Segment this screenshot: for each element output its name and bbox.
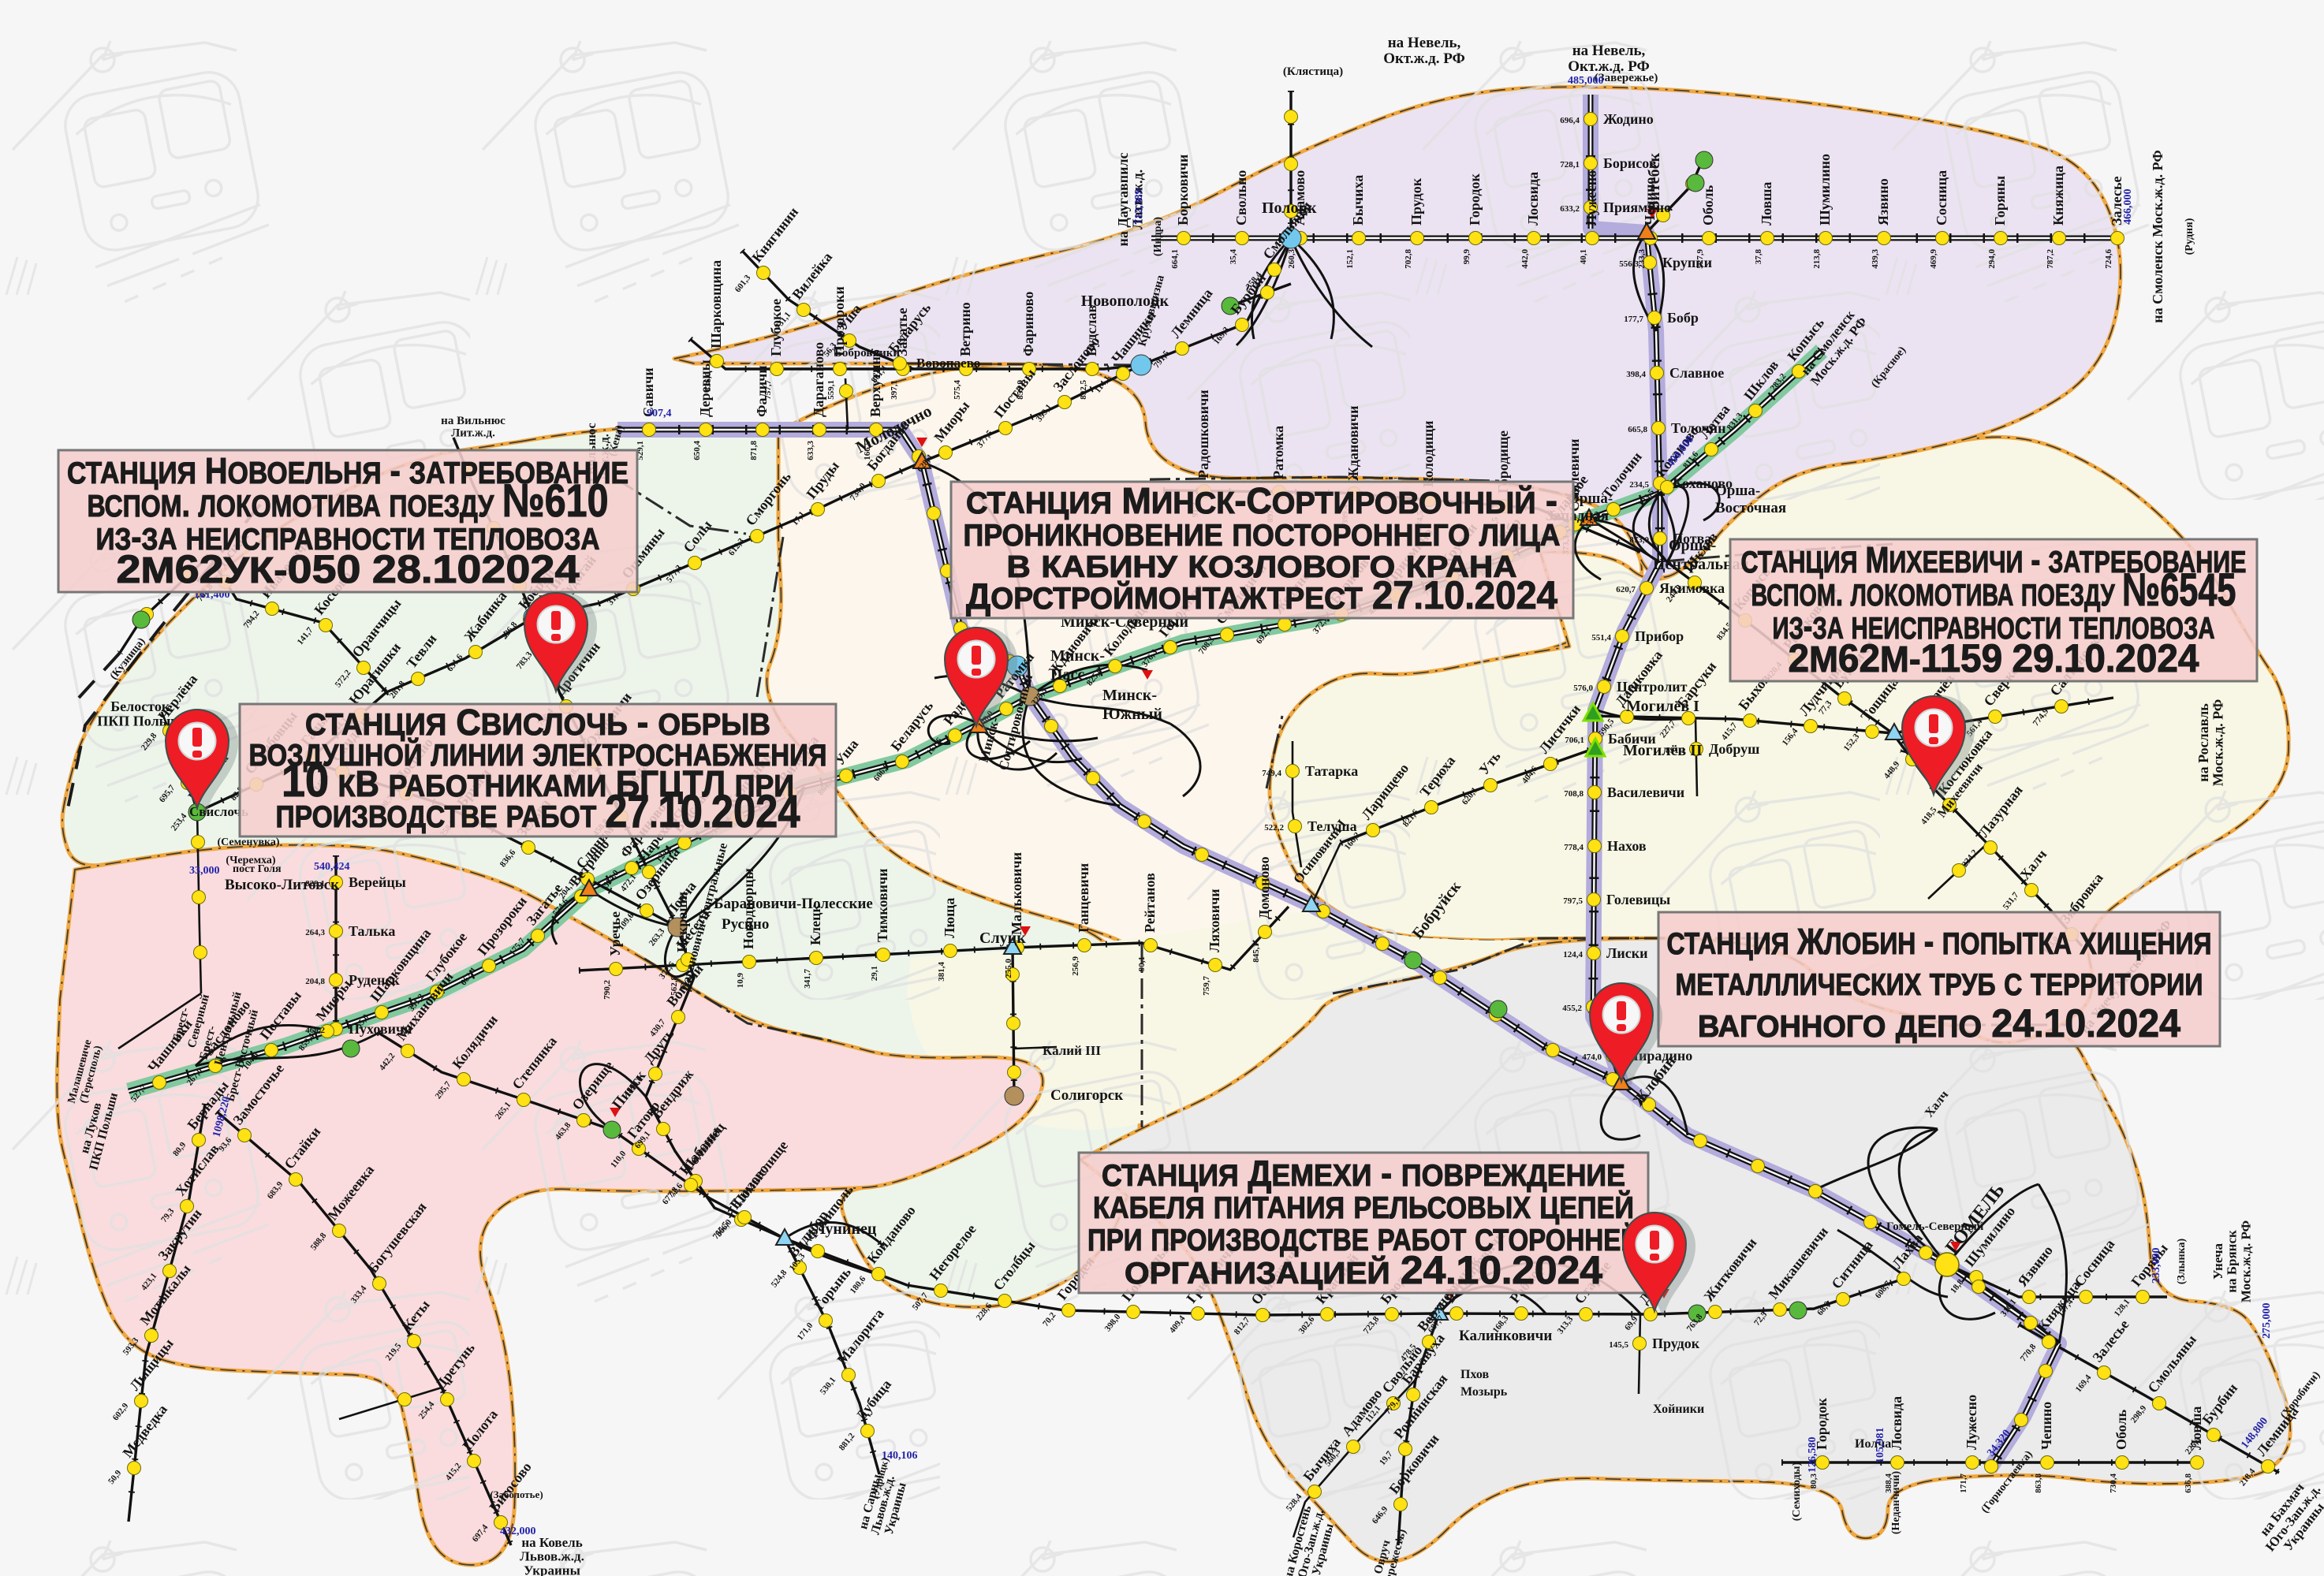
svg-text:Фаличи: Фаличи xyxy=(754,365,770,417)
svg-text:Свольно: Свольно xyxy=(1233,170,1249,225)
svg-text:892,5: 892,5 xyxy=(1079,380,1088,400)
svg-text:(Рудня): (Рудня) xyxy=(2184,218,2195,255)
svg-text:Калий III: Калий III xyxy=(1043,1043,1101,1058)
svg-text:Бобр: Бобр xyxy=(1667,310,1699,326)
svg-text:на КовельЛьвов.ж.д.Украины: на КовельЛьвов.ж.д.Украины xyxy=(520,1535,584,1576)
svg-text:Лосвида: Лосвида xyxy=(1525,172,1541,225)
svg-text:33,000: 33,000 xyxy=(189,865,220,877)
svg-text:233,000: 233,000 xyxy=(2151,1248,2162,1284)
svg-text:Радошковичи: Радошковичи xyxy=(1196,389,1211,479)
svg-text:Городок: Городок xyxy=(1467,173,1483,225)
svg-text:Мозырь: Мозырь xyxy=(1460,1385,1508,1399)
svg-text:439,3: 439,3 xyxy=(1871,249,1880,269)
svg-text:442,0: 442,0 xyxy=(1520,249,1530,269)
svg-text:СТАНЦИЯ ДЕМЕХИ - ПОВРЕЖДЕНИЕ: СТАНЦИЯ ДЕМЕХИ - ПОВРЕЖДЕНИЕ xyxy=(1102,1153,1625,1194)
svg-text:466,000: 466,000 xyxy=(2122,189,2134,225)
svg-text:Минск-: Минск- xyxy=(1102,687,1157,704)
svg-text:Домоново: Домоново xyxy=(1256,856,1272,919)
svg-text:397,1: 397,1 xyxy=(890,380,899,400)
svg-text:Лужесно: Лужесно xyxy=(1584,170,1599,225)
svg-text:636,8: 636,8 xyxy=(2184,1474,2193,1493)
svg-text:Солигорск: Солигорск xyxy=(1050,1087,1123,1104)
svg-text:398,4: 398,4 xyxy=(1626,370,1646,379)
svg-text:Язвино: Язвино xyxy=(1875,178,1891,225)
svg-text:Гомель-Северный: Гомель-Северный xyxy=(1886,1220,1984,1233)
svg-text:Ганцевичи: Ганцевичи xyxy=(1076,863,1091,933)
svg-text:Горяны: Горяны xyxy=(1992,176,2008,225)
svg-text:171,7: 171,7 xyxy=(1959,1474,1968,1493)
svg-text:633,2: 633,2 xyxy=(1560,204,1580,214)
svg-text:90,1: 90,1 xyxy=(1137,956,1147,971)
svg-text:Лужесно: Лужесно xyxy=(1964,1395,1979,1450)
svg-text:Ляховичи: Ляховичи xyxy=(1207,889,1222,952)
svg-text:Пхов: Пхов xyxy=(1460,1368,1489,1381)
svg-text:Уречье: Уречье xyxy=(607,911,623,956)
svg-text:Пасс.: Пасс. xyxy=(1050,666,1088,684)
svg-text:Центролит: Центролит xyxy=(1617,679,1688,695)
svg-text:40,1: 40,1 xyxy=(1579,249,1588,264)
svg-text:778,4: 778,4 xyxy=(1564,843,1584,852)
svg-text:702,8: 702,8 xyxy=(1404,249,1413,269)
svg-text:Шумилино: Шумилино xyxy=(1817,154,1833,225)
svg-text:КАБЕЛЯ ПИТАНИЯ РЕЛЬСОВЫХ ЦЕПЕЙ: КАБЕЛЯ ПИТАНИЯ РЕЛЬСОВЫХ ЦЕПЕЙ xyxy=(1093,1185,1634,1226)
svg-text:ПРОНИКНОВЕНИЕ ПОСТОРОННЕГО ЛИЦ: ПРОНИКНОВЕНИЕ ПОСТОРОННЕГО ЛИЦА xyxy=(964,512,1561,553)
svg-text:455,2: 455,2 xyxy=(1562,1004,1582,1013)
svg-text:260,3: 260,3 xyxy=(1287,249,1296,269)
svg-text:(Завережье): (Завережье) xyxy=(1595,72,1658,84)
svg-text:МЕТАЛЛЛИЧЕСКИХ ТРУБ С ТЕРРИТОР: МЕТАЛЛЛИЧЕСКИХ ТРУБ С ТЕРРИТОРИИ xyxy=(1676,962,2203,1003)
svg-text:Голевицы: Голевицы xyxy=(1606,892,1670,907)
svg-text:Рейтанов: Рейтанов xyxy=(1142,873,1158,933)
svg-text:80,3: 80,3 xyxy=(1809,1474,1819,1489)
svg-text:Оболь: Оболь xyxy=(1700,184,1716,225)
svg-text:871,8: 871,8 xyxy=(749,441,759,460)
svg-text:35,4: 35,4 xyxy=(1229,249,1238,265)
svg-text:Будслав: Будслав xyxy=(1084,304,1099,356)
svg-text:Орша-: Орша- xyxy=(1669,537,1716,554)
svg-text:105,981: 105,981 xyxy=(1874,1428,1886,1464)
svg-text:Люща: Люща xyxy=(942,898,957,938)
svg-text:708,8: 708,8 xyxy=(1564,789,1584,799)
svg-text:Калинковичи: Калинковичи xyxy=(1459,1328,1552,1344)
svg-text:2М62М-1159 29.10.2024: 2М62М-1159 29.10.2024 xyxy=(1789,636,2199,680)
svg-text:145,5: 145,5 xyxy=(1609,1340,1628,1350)
svg-text:650,4: 650,4 xyxy=(692,441,702,460)
svg-text:Василевичи: Василевичи xyxy=(1607,784,1684,800)
svg-text:Дараганово: Дараганово xyxy=(811,342,826,417)
svg-text:724,6: 724,6 xyxy=(2104,249,2113,269)
svg-text:152,1: 152,1 xyxy=(1345,249,1355,269)
svg-text:Ветрино: Ветрино xyxy=(957,302,973,356)
svg-text:294,0: 294,0 xyxy=(1987,249,1997,269)
svg-text:620,7: 620,7 xyxy=(1616,585,1636,594)
svg-text:(Неданчичи): (Неданчичи) xyxy=(1890,1471,1902,1535)
svg-text:Орша-: Орша- xyxy=(1715,482,1760,499)
svg-text:Прудок: Прудок xyxy=(1408,177,1424,225)
svg-text:Крупки: Крупки xyxy=(1662,255,1712,270)
svg-text:730,4: 730,4 xyxy=(2109,1474,2118,1493)
svg-text:Жодино: Жодино xyxy=(1603,111,1654,127)
svg-text:на Смоленск Моск.ж.д. РФ: на Смоленск Моск.ж.д. РФ xyxy=(2150,150,2165,322)
svg-text:633,3: 633,3 xyxy=(806,441,815,460)
svg-text:728,1: 728,1 xyxy=(1560,160,1580,170)
svg-text:(Заболотье): (Заболотье) xyxy=(490,1488,543,1500)
svg-text:204,8: 204,8 xyxy=(305,977,325,986)
svg-text:696,4: 696,4 xyxy=(1560,116,1580,125)
svg-text:469,9: 469,9 xyxy=(1929,249,1938,269)
svg-text:10,9: 10,9 xyxy=(736,973,745,989)
svg-text:275,000: 275,000 xyxy=(2261,1303,2273,1339)
svg-text:29,1: 29,1 xyxy=(870,966,879,981)
svg-text:(Злынка): (Злынка) xyxy=(2176,1239,2188,1285)
svg-text:140,106: 140,106 xyxy=(882,1450,918,1462)
svg-text:256,9: 256,9 xyxy=(1071,956,1080,976)
svg-text:522,2: 522,2 xyxy=(1264,823,1284,833)
svg-text:556,3: 556,3 xyxy=(1619,259,1639,269)
svg-text:Полоцк: Полоцк xyxy=(1262,199,1317,217)
svg-text:Талька: Талька xyxy=(349,923,395,939)
svg-text:551,4: 551,4 xyxy=(1591,633,1611,643)
svg-text:559,1: 559,1 xyxy=(826,380,836,400)
svg-text:Могилёв I: Могилёв I xyxy=(1626,698,1699,715)
svg-text:СТАНЦИЯ СВИСЛОЧЬ - ОБРЫВ: СТАНЦИЯ СВИСЛОЧЬ - ОБРЫВ xyxy=(305,702,770,743)
svg-text:Мальковичи: Мальковичи xyxy=(1009,852,1024,935)
svg-text:Лунинец: Лунинец xyxy=(814,1220,877,1238)
svg-text:Минск-: Минск- xyxy=(1050,647,1105,665)
svg-text:255,0: 255,0 xyxy=(1004,959,1013,978)
svg-text:759,7: 759,7 xyxy=(1202,976,1211,996)
svg-text:907,4: 907,4 xyxy=(647,408,672,419)
svg-text:124,4: 124,4 xyxy=(1563,950,1583,959)
svg-text:664,1: 664,1 xyxy=(1170,249,1180,269)
svg-text:177,7: 177,7 xyxy=(1624,315,1643,324)
svg-text:на Невель,Окт.ж.д. РФ: на Невель,Окт.ж.д. РФ xyxy=(1568,43,1650,75)
svg-text:СТАНЦИЯ ЖЛОБИН - ПОПЫТКА ХИЩЕН: СТАНЦИЯ ЖЛОБИН - ПОПЫТКА ХИЩЕНИЯ xyxy=(1667,921,2212,962)
svg-text:Славное: Славное xyxy=(1669,365,1724,381)
svg-text:Ратомка: Ратомка xyxy=(1270,426,1286,479)
svg-text:Прибор: Прибор xyxy=(1635,628,1684,644)
svg-text:790,2: 790,2 xyxy=(602,980,612,1000)
svg-text:863,8: 863,8 xyxy=(2034,1474,2043,1493)
svg-text:575,4: 575,4 xyxy=(953,380,962,400)
svg-text:485,000: 485,000 xyxy=(1568,75,1604,87)
svg-text:(Клястица): (Клястица) xyxy=(1283,65,1343,78)
svg-text:Деревцы: Деревцы xyxy=(697,360,713,417)
svg-text:234,5: 234,5 xyxy=(1629,480,1649,490)
svg-text:Верейцы: Верейцы xyxy=(349,874,406,890)
svg-text:(Семиходы): (Семиходы) xyxy=(1791,1462,1803,1521)
svg-text:787,2: 787,2 xyxy=(2046,249,2055,269)
svg-text:264,3: 264,3 xyxy=(305,928,325,937)
svg-text:на РославльМоск.ж.д. РФ: на РославльМоск.ж.д. РФ xyxy=(2195,699,2226,786)
svg-text:749,4: 749,4 xyxy=(1262,769,1281,778)
svg-text:Бобровники: Бобровники xyxy=(834,347,900,360)
svg-text:Воропаево: Воропаево xyxy=(916,356,980,371)
svg-text:Бычиха: Бычиха xyxy=(1350,175,1366,225)
svg-text:712,389: 712,389 xyxy=(1133,189,1145,225)
svg-text:Якимовка: Якимовка xyxy=(1659,580,1725,596)
svg-text:37,8: 37,8 xyxy=(1754,249,1763,265)
svg-text:Княжица: Княжица xyxy=(2050,166,2066,225)
svg-text:(Индра): (Индра) xyxy=(1152,217,1164,256)
svg-text:859,9: 859,9 xyxy=(1016,380,1025,400)
svg-text:381,4: 381,4 xyxy=(937,962,946,982)
svg-text:213,8: 213,8 xyxy=(1812,249,1822,269)
svg-text:Русино: Русино xyxy=(722,916,769,933)
svg-text:Витебск: Витебск xyxy=(1646,153,1663,211)
svg-text:Хойники: Хойники xyxy=(1653,1403,1704,1416)
svg-text:341,7: 341,7 xyxy=(803,969,812,989)
svg-text:2М62УК-050 28.102024: 2М62УК-050 28.102024 xyxy=(117,547,580,591)
svg-text:540,424: 540,424 xyxy=(314,861,350,873)
svg-text:Тимковичи: Тимковичи xyxy=(875,869,890,943)
svg-text:Барановичи-Полесские: Барановичи-Полесские xyxy=(714,896,873,912)
svg-text:Восточная: Восточная xyxy=(1715,500,1786,516)
svg-text:706,1: 706,1 xyxy=(1565,736,1584,745)
svg-text:665,8: 665,8 xyxy=(1628,425,1647,434)
svg-text:Лиски: Лиски xyxy=(1606,945,1648,961)
svg-text:Прудок: Прудок xyxy=(1652,1336,1700,1351)
svg-text:(Семенувка): (Семенувка) xyxy=(217,836,279,848)
svg-text:797,5: 797,5 xyxy=(1563,896,1583,906)
svg-text:Колодищи: Колодищи xyxy=(1420,420,1436,487)
svg-text:Орша-: Орша- xyxy=(1568,490,1613,507)
svg-text:Могилёв II: Могилёв II xyxy=(1623,742,1703,759)
svg-text:474,0: 474,0 xyxy=(1582,1053,1602,1062)
svg-text:576,0: 576,0 xyxy=(1573,684,1593,693)
svg-text:Оболь: Оболь xyxy=(2113,1409,2129,1450)
svg-text:Южный: Южный xyxy=(1102,706,1162,723)
svg-text:Нахов: Нахов xyxy=(1607,838,1647,854)
svg-text:Добруш: Добруш xyxy=(1709,741,1759,757)
svg-text:Чепино: Чепино xyxy=(2039,1402,2054,1450)
svg-text:Слуцк: Слуцк xyxy=(979,930,1026,947)
svg-text:(Черемха): (Черемха) xyxy=(226,855,276,866)
svg-text:99,9: 99,9 xyxy=(1462,249,1472,265)
svg-text:845,1: 845,1 xyxy=(1252,943,1261,963)
svg-text:126,580: 126,580 xyxy=(1807,1437,1819,1474)
svg-text:СТАНЦИЯ МИНСК-СОРТИРОВОЧНЫЙ -: СТАНЦИЯ МИНСК-СОРТИРОВОЧНЫЙ - xyxy=(966,480,1557,521)
svg-text:Сосница: Сосница xyxy=(1934,170,1949,225)
svg-text:Фариново: Фариново xyxy=(1020,292,1036,356)
svg-text:Шарковщина: Шарковщина xyxy=(708,260,724,348)
svg-text:на Невель,Окт.ж.д. РФ: на Невель,Окт.ж.д. РФ xyxy=(1383,35,1465,67)
svg-text:Борковичи: Борковичи xyxy=(1175,155,1191,225)
svg-text:432,000: 432,000 xyxy=(500,1526,536,1537)
svg-text:Татарка: Татарка xyxy=(1305,763,1358,779)
svg-text:Ждановичи: Ждановичи xyxy=(1345,406,1361,481)
svg-text:873,0: 873,0 xyxy=(1629,535,1649,545)
svg-text:Ловша: Ловша xyxy=(1759,182,1774,225)
svg-text:Высоко-Литовск: Высоко-Литовск xyxy=(225,877,339,893)
